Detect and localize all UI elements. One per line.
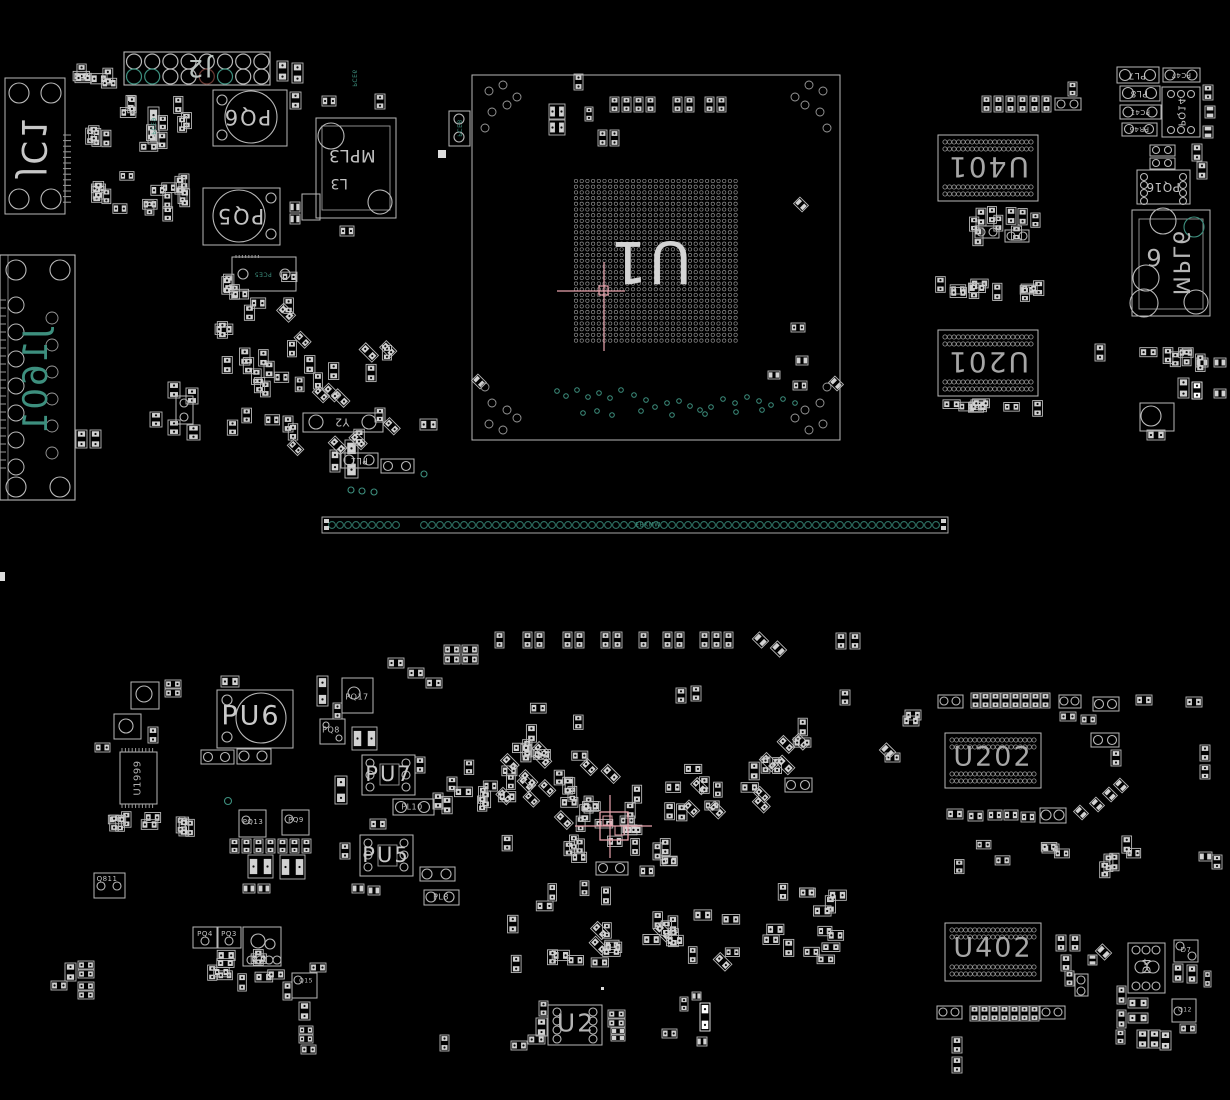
component-pill-1055[interactable] [1055, 98, 1081, 110]
chip-part[interactable] [420, 419, 437, 430]
chip-part[interactable] [1163, 348, 1173, 364]
chip-part[interactable] [663, 632, 672, 648]
chip-part[interactable] [1117, 986, 1126, 1004]
chip-part[interactable] [952, 1037, 962, 1053]
chip-part[interactable] [444, 655, 460, 664]
chip-part[interactable] [462, 655, 478, 664]
chip-part[interactable] [794, 197, 809, 212]
chip-part[interactable] [120, 172, 134, 181]
chip-part[interactable] [1114, 778, 1129, 793]
chip-part[interactable] [981, 693, 990, 708]
component-pill-1150b[interactable] [1150, 158, 1175, 169]
chip-part[interactable] [299, 1026, 313, 1034]
chip-part[interactable] [1006, 96, 1015, 112]
chip-part[interactable] [572, 751, 588, 760]
chip-part[interactable] [549, 104, 565, 119]
chip-part[interactable] [502, 835, 512, 851]
chip-part[interactable] [462, 645, 478, 654]
chip-part[interactable] [548, 884, 557, 901]
chip-part[interactable] [1030, 1006, 1039, 1021]
chip-part[interactable] [700, 1003, 710, 1031]
chip-part[interactable] [850, 633, 860, 649]
chip-part[interactable] [717, 97, 726, 112]
strip-hole [337, 522, 344, 529]
chip-part[interactable] [1128, 998, 1148, 1008]
chip-part[interactable] [335, 776, 347, 804]
chip-part[interactable] [1203, 126, 1213, 138]
chip-part[interactable] [1205, 106, 1215, 118]
chip-part[interactable] [1041, 693, 1050, 708]
selection-overlay[interactable] [557, 262, 652, 858]
chip-part[interactable] [113, 204, 127, 214]
bga-ball [700, 322, 703, 325]
chip-part[interactable] [511, 1041, 527, 1050]
chip-part[interactable] [608, 1019, 625, 1027]
chip-part[interactable] [278, 839, 287, 853]
chip-part[interactable] [613, 632, 622, 648]
chip-part[interactable] [1020, 1006, 1029, 1021]
chip-part[interactable] [601, 764, 620, 783]
chip-part[interactable] [523, 791, 540, 808]
chip-part[interactable] [221, 676, 239, 687]
chip-part[interactable] [1042, 96, 1051, 112]
chip-part[interactable] [78, 970, 94, 978]
chip-part[interactable] [1081, 715, 1096, 724]
chip-part[interactable] [692, 992, 701, 1000]
chip-part[interactable] [691, 686, 701, 701]
chip-part[interactable] [368, 886, 380, 895]
chip-part[interactable] [340, 226, 354, 236]
chip-part[interactable] [90, 430, 101, 448]
chip-part[interactable] [976, 840, 991, 849]
chip-part[interactable] [840, 690, 850, 705]
chip-part[interactable] [952, 1057, 962, 1073]
chip-part[interactable] [227, 420, 237, 435]
component-pill-1150a[interactable] [1150, 145, 1175, 156]
chip-part[interactable] [277, 61, 288, 81]
chip-part[interactable] [1180, 1024, 1196, 1033]
chip-part[interactable] [798, 718, 807, 736]
chip-part[interactable] [328, 436, 347, 455]
chip-part[interactable] [280, 855, 305, 879]
chip-part[interactable] [1095, 344, 1105, 361]
chip-part[interactable] [1068, 82, 1077, 96]
chip-part[interactable] [993, 283, 1002, 300]
chip-part[interactable] [1060, 712, 1076, 721]
bga-ball [666, 191, 669, 194]
chip-part[interactable] [506, 774, 515, 789]
chip-part[interactable] [141, 820, 158, 830]
chip-part[interactable] [536, 901, 553, 911]
chip-part[interactable] [749, 762, 759, 780]
chip-part[interactable] [230, 839, 239, 853]
chip-part[interactable] [714, 782, 723, 797]
chip-part[interactable] [310, 963, 326, 972]
chip-part[interactable] [676, 688, 686, 703]
chip-part[interactable] [561, 797, 578, 807]
chip-part[interactable] [302, 839, 311, 853]
chip-part[interactable] [78, 982, 94, 990]
component-pill-1040b[interactable] [1040, 1006, 1065, 1019]
chip-part[interactable] [598, 130, 607, 146]
chip-part[interactable] [591, 958, 608, 967]
chip-part[interactable] [836, 633, 846, 649]
chip-part[interactable] [508, 915, 518, 933]
chip-part[interactable] [366, 364, 376, 381]
chip-part[interactable] [317, 676, 328, 706]
component-pill-938[interactable] [938, 695, 963, 708]
component-pill-785[interactable] [785, 778, 812, 792]
chip-part[interactable] [292, 63, 303, 83]
chip-part[interactable] [408, 668, 424, 678]
chip-part[interactable] [539, 1001, 548, 1016]
chip-part[interactable] [639, 632, 648, 648]
via-dot [688, 404, 693, 409]
chip-part[interactable] [574, 715, 584, 729]
chip-part[interactable] [688, 947, 697, 964]
chip-part[interactable] [174, 96, 183, 113]
chip-part[interactable] [535, 632, 544, 648]
component-pill-1075[interactable] [1075, 974, 1088, 996]
chip-part[interactable] [634, 97, 643, 112]
chip-part[interactable] [1088, 955, 1097, 965]
chip-part[interactable] [554, 811, 573, 830]
chip-part[interactable] [784, 939, 794, 956]
chip-part[interactable] [1200, 765, 1210, 779]
chip-part[interactable] [283, 982, 292, 1000]
chip-part[interactable] [150, 412, 162, 427]
chip-part[interactable] [1173, 964, 1183, 982]
chip-part[interactable] [165, 689, 181, 697]
chip-part[interactable] [530, 703, 546, 713]
chip-part[interactable] [610, 130, 619, 146]
chip-part[interactable] [290, 92, 301, 109]
chip-part[interactable] [601, 632, 610, 648]
chip-part[interactable] [724, 632, 733, 648]
bga-ball [603, 231, 606, 234]
chip-part[interactable] [980, 1006, 989, 1021]
chip-part[interactable] [102, 130, 111, 146]
chip-part[interactable] [523, 632, 532, 648]
chip-part[interactable] [248, 855, 273, 878]
chip-part[interactable] [51, 981, 67, 990]
chip-part[interactable] [1011, 693, 1020, 708]
chip-part[interactable] [168, 420, 180, 435]
chip-part[interactable] [694, 910, 712, 920]
chip-part[interactable] [333, 703, 342, 719]
chip-part[interactable] [725, 948, 739, 957]
chip-part[interactable] [1111, 750, 1121, 766]
chip-part[interactable] [187, 425, 200, 440]
chip-part[interactable] [1214, 389, 1226, 398]
chip-part[interactable] [375, 94, 385, 109]
chip-part[interactable] [991, 693, 1000, 708]
chip-part[interactable] [108, 815, 125, 824]
chip-part[interactable] [1128, 1013, 1148, 1023]
chip-part[interactable] [76, 430, 87, 448]
chip-part[interactable] [943, 400, 960, 409]
chip-part[interactable] [1061, 955, 1071, 971]
component-pill-937[interactable] [937, 1006, 962, 1019]
chip-part[interactable] [290, 214, 300, 224]
chip-part[interactable] [994, 96, 1003, 112]
component-box-1992[interactable] [131, 682, 159, 709]
chip-part[interactable] [608, 1010, 625, 1018]
chip-part[interactable] [770, 641, 786, 657]
chip-part[interactable] [1214, 358, 1226, 367]
chip-part[interactable] [1116, 1030, 1125, 1044]
chip-part[interactable] [1212, 855, 1222, 869]
chip-part[interactable] [970, 1006, 979, 1021]
chip-part[interactable] [313, 373, 322, 389]
chip-part[interactable] [242, 408, 252, 423]
chip-part[interactable] [796, 356, 808, 365]
chip-part[interactable] [1074, 805, 1089, 820]
chip-part[interactable] [697, 1037, 707, 1046]
chip-part[interactable] [359, 343, 378, 362]
chip-part[interactable] [955, 860, 964, 874]
chip-part[interactable] [440, 1035, 449, 1051]
chip-part[interactable] [712, 632, 721, 648]
chip-part[interactable] [426, 678, 442, 688]
chip-part[interactable] [148, 727, 158, 743]
chip-part[interactable] [936, 277, 946, 293]
chip-part[interactable] [1160, 1031, 1171, 1050]
chip-part[interactable] [290, 839, 299, 853]
chip-part[interactable] [1192, 382, 1202, 399]
chip-part[interactable] [640, 866, 654, 876]
chip-part[interactable] [622, 97, 631, 112]
chip-part[interactable] [163, 207, 173, 221]
component-pill-1091[interactable] [1091, 733, 1119, 747]
chip-part[interactable] [602, 887, 611, 905]
chip-part[interactable] [1178, 378, 1189, 398]
chip-part[interactable] [971, 693, 980, 708]
chip-part[interactable] [685, 764, 702, 773]
chip-part[interactable] [1137, 1030, 1148, 1048]
chip-part[interactable] [442, 796, 452, 813]
chip-part[interactable] [383, 418, 400, 435]
chip-part[interactable] [574, 74, 583, 90]
chip-part[interactable] [763, 935, 779, 945]
pad-hole [673, 1032, 675, 1034]
chip-part[interactable] [274, 372, 288, 382]
chip-part[interactable] [666, 782, 681, 792]
chip-part[interactable] [1018, 96, 1027, 112]
chip-part[interactable] [165, 680, 181, 688]
chip-part[interactable] [1204, 971, 1211, 987]
chip-part[interactable] [299, 1035, 313, 1043]
chip-part[interactable] [301, 1045, 316, 1054]
component-pill-598[interactable] [596, 862, 628, 875]
component-pill-PF[interactable] [201, 750, 234, 764]
chip-part[interactable] [243, 884, 255, 893]
chip-part[interactable] [767, 924, 784, 934]
chip-part[interactable] [158, 116, 167, 131]
chip-part[interactable] [1090, 797, 1105, 812]
chip-part[interactable] [675, 632, 684, 648]
component-box-1991[interactable] [114, 714, 141, 739]
chip-part[interactable] [791, 323, 805, 332]
chip-part[interactable] [1006, 208, 1016, 225]
chip-part[interactable] [680, 997, 688, 1011]
chip-part[interactable] [352, 884, 364, 893]
component-MPL3-corner[interactable] [302, 194, 320, 220]
chip-part[interactable] [290, 202, 300, 212]
chip-part[interactable] [568, 956, 584, 965]
chip-part[interactable] [549, 120, 565, 135]
chip-part[interactable] [990, 1006, 999, 1021]
chip-part[interactable] [511, 955, 521, 972]
chip-part[interactable] [539, 780, 556, 797]
chip-part[interactable] [95, 743, 110, 752]
chip-part[interactable] [611, 1035, 625, 1041]
chip-part[interactable] [1203, 85, 1213, 100]
chip-part[interactable] [1021, 812, 1035, 822]
chip-part[interactable] [1018, 208, 1027, 224]
chip-part[interactable] [646, 97, 655, 112]
chip-part[interactable] [472, 374, 487, 389]
chip-part[interactable] [217, 959, 234, 968]
chip-part[interactable] [265, 415, 280, 425]
chip-part[interactable] [580, 758, 597, 775]
chip-part[interactable] [705, 97, 714, 112]
chip-part[interactable] [1192, 144, 1202, 161]
chip-part[interactable] [242, 839, 251, 853]
chip-part[interactable] [1200, 745, 1210, 761]
chip-part[interactable] [1117, 1010, 1126, 1028]
chip-part[interactable] [683, 800, 700, 817]
chip-part[interactable] [287, 439, 303, 455]
chip-part[interactable] [266, 839, 275, 853]
chip-part[interactable] [388, 658, 404, 668]
chip-part[interactable] [778, 884, 787, 901]
pad-hole [299, 387, 301, 389]
chip-part[interactable] [580, 881, 589, 896]
chip-part[interactable] [1000, 1006, 1009, 1021]
chip-part[interactable] [1136, 695, 1152, 705]
chip-part[interactable] [631, 838, 640, 855]
chip-part[interactable] [722, 915, 739, 925]
chip-part[interactable] [777, 735, 795, 753]
chip-part[interactable] [295, 377, 304, 392]
chip-part[interactable] [222, 357, 232, 374]
chip-part[interactable] [329, 363, 339, 380]
chip-part[interactable] [415, 757, 425, 773]
chip-part[interactable] [793, 381, 807, 390]
chip-part[interactable] [258, 884, 270, 893]
chip-part[interactable] [700, 632, 709, 648]
chip-part[interactable] [1095, 944, 1111, 960]
chip-part[interactable] [1140, 348, 1157, 357]
chip-part[interactable] [1004, 810, 1018, 820]
chip-part[interactable] [1010, 1006, 1019, 1021]
chip-part[interactable] [620, 816, 635, 825]
chip-part[interactable] [254, 839, 263, 853]
chip-part[interactable] [822, 943, 840, 952]
chip-part[interactable] [340, 843, 350, 859]
chip-part[interactable] [1001, 693, 1010, 708]
component-pill-381[interactable] [381, 459, 414, 473]
chip-part[interactable] [495, 632, 504, 648]
component-rtc-body[interactable] [1140, 403, 1174, 431]
chip-part[interactable] [685, 97, 694, 112]
chip-part[interactable] [370, 819, 386, 829]
chip-part[interactable] [1056, 935, 1066, 951]
chip-part[interactable] [665, 803, 675, 820]
chip-part[interactable] [65, 963, 76, 981]
chip-part[interactable] [673, 97, 682, 112]
chip-part[interactable] [464, 760, 473, 774]
chip-part[interactable] [1186, 697, 1202, 707]
chip-part[interactable] [982, 96, 991, 112]
component-pill-237[interactable] [237, 749, 271, 764]
chip-part[interactable] [305, 356, 315, 374]
chip-part[interactable] [1199, 852, 1212, 861]
chip-part[interactable] [1033, 401, 1043, 417]
component-MPL3[interactable] [316, 118, 396, 218]
component-pill-1059[interactable] [1059, 695, 1081, 708]
chip-part[interactable] [78, 961, 94, 969]
chip-part[interactable] [536, 1018, 547, 1036]
chip-part[interactable] [352, 727, 377, 750]
chip-part[interactable] [299, 1002, 310, 1020]
chip-part[interactable] [662, 1029, 677, 1038]
chip-part[interactable] [643, 934, 660, 944]
chip-part[interactable] [575, 632, 584, 648]
chip-part[interactable] [1065, 971, 1074, 986]
chip-part[interactable] [78, 991, 94, 999]
chip-part[interactable] [563, 632, 572, 648]
chip-part[interactable] [995, 856, 1010, 865]
chip-part[interactable] [752, 632, 768, 648]
chip-part[interactable] [1004, 403, 1020, 412]
chip-part[interactable] [1031, 693, 1040, 708]
component-pill-1093[interactable] [1093, 697, 1119, 711]
pcb-board-canvas[interactable]: JC1J2PQ6PQ5MPL3L3PCE6PCE8PCE9PCE5U1U401U… [0, 0, 1230, 1100]
chip-part[interactable] [768, 371, 780, 379]
chip-part[interactable] [1187, 965, 1197, 983]
component-pill-420[interactable] [420, 867, 455, 881]
chip-part[interactable] [1103, 787, 1118, 802]
chip-part[interactable] [322, 96, 336, 106]
chip-part[interactable] [1197, 162, 1207, 179]
chip-part[interactable] [988, 810, 1002, 820]
chip-part[interactable] [713, 952, 732, 971]
chip-part[interactable] [1149, 1030, 1160, 1048]
chip-part[interactable] [244, 305, 254, 320]
chip-part[interactable] [447, 777, 457, 791]
chip-part[interactable] [287, 341, 296, 357]
chip-part[interactable] [585, 107, 593, 121]
chip-part[interactable] [1031, 213, 1040, 227]
chip-part[interactable] [947, 809, 963, 819]
chip-part[interactable] [1070, 935, 1080, 951]
component-pill-1040[interactable] [1040, 808, 1066, 823]
chip-part[interactable] [238, 974, 247, 991]
chip-part[interactable] [1021, 693, 1030, 708]
chip-part[interactable] [1030, 96, 1039, 112]
chip-part[interactable] [611, 1028, 625, 1034]
chip-part[interactable] [973, 228, 983, 246]
chip-part[interactable] [610, 97, 619, 112]
chip-part[interactable] [968, 811, 983, 821]
chip-part[interactable] [632, 785, 641, 803]
chip-part[interactable] [444, 645, 460, 654]
chip-part[interactable] [251, 298, 266, 308]
chip-part[interactable] [970, 217, 979, 231]
chip-part[interactable] [277, 303, 296, 322]
